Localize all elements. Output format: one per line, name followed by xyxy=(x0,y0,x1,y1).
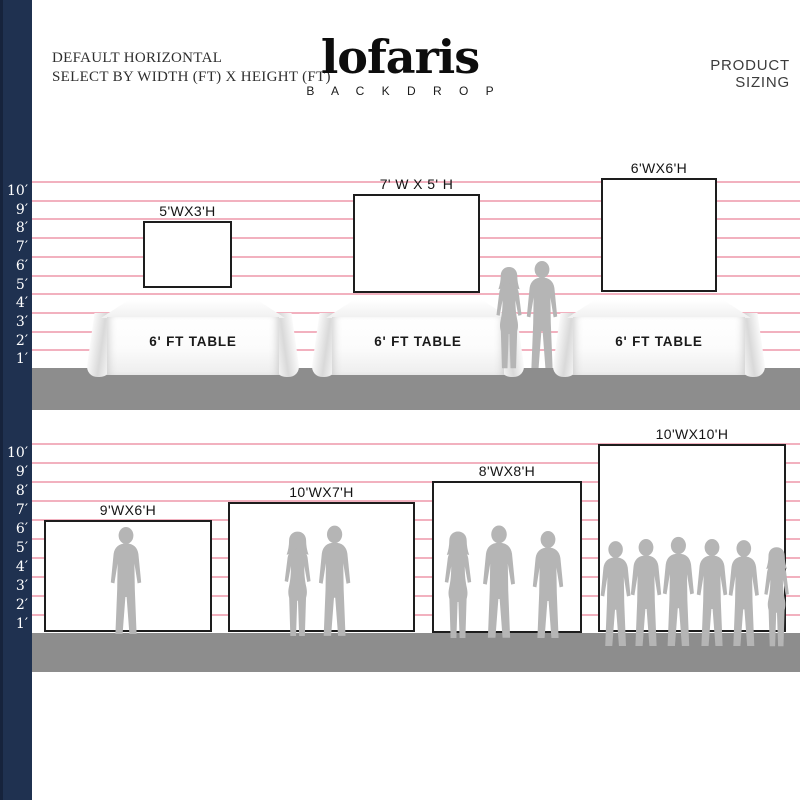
header-subtitle: DEFAULT HORIZONTAL SELECT BY WIDTH (FT) … xyxy=(52,49,331,87)
group-silhouette-10x10 xyxy=(596,532,796,650)
ruler-label-7ft-bottom: 7′ xyxy=(0,502,28,519)
ruler-label-7ft-top: 7′ xyxy=(0,239,28,256)
man-silhouette xyxy=(697,539,727,646)
table-2-label: 6' FT TABLE xyxy=(332,334,504,349)
ruler-label-10ft-top: 10′ xyxy=(0,183,28,200)
header-subtitle-line2: SELECT BY WIDTH (FT) X HEIGHT (FT) xyxy=(52,68,331,87)
single-man-silhouette xyxy=(106,524,146,638)
table-front: 6' FT TABLE xyxy=(573,317,745,375)
table-front: 6' FT TABLE xyxy=(107,317,279,375)
brand-logo-subtitle: B A C K D R O P xyxy=(300,84,500,98)
backdrop-10x7-label: 10'WX7'H xyxy=(200,484,443,500)
ruler-label-1ft-bottom: 1′ xyxy=(0,616,28,633)
ruler-label-4ft-top: 4′ xyxy=(0,295,28,312)
woman-silhouette xyxy=(445,532,471,639)
backdrop-10x10-label: 10'WX10'H xyxy=(570,426,800,442)
couple-silhouette-top xyxy=(490,254,570,372)
ruler-label-8ft-bottom: 8′ xyxy=(0,483,28,500)
ruler-label-6ft-top: 6′ xyxy=(0,258,28,275)
man-silhouette xyxy=(483,525,515,637)
couple-silhouette-10x7 xyxy=(276,522,361,640)
man-silhouette xyxy=(533,531,563,638)
ruler-label-8ft-top: 8′ xyxy=(0,220,28,237)
man-silhouette xyxy=(111,527,141,634)
man-silhouette xyxy=(663,537,694,646)
backdrop-5x3: 5'WX3'H xyxy=(143,221,232,288)
ruler-label-1ft-top: 1′ xyxy=(0,351,28,368)
product-sizing-chart: DEFAULT HORIZONTAL SELECT BY WIDTH (FT) … xyxy=(0,0,800,800)
trio-silhouette-8x8 xyxy=(438,520,573,642)
woman-silhouette xyxy=(285,532,311,636)
ruler-label-2ft-top: 2′ xyxy=(0,333,28,350)
ruler-label-4ft-bottom: 4′ xyxy=(0,559,28,576)
banquet-table-3: 6' FT TABLE xyxy=(573,300,745,376)
man-silhouette xyxy=(729,540,759,646)
woman-silhouette xyxy=(764,547,789,646)
table-3-label: 6' FT TABLE xyxy=(573,334,745,349)
table-top-surface xyxy=(567,300,751,318)
brand-logo: lofaris B A C K D R O P xyxy=(300,32,500,98)
backdrop-5x3-label: 5'WX3'H xyxy=(115,203,260,219)
backdrop-6x6: 6'WX6'H xyxy=(601,178,717,292)
logo-subtitle-text: B A C K D R O P xyxy=(299,84,500,98)
woman-silhouette xyxy=(496,267,521,368)
ruler-label-5ft-top: 5′ xyxy=(0,277,28,294)
ruler-label-3ft-top: 3′ xyxy=(0,314,28,331)
man-silhouette xyxy=(527,261,557,368)
backdrop-7x5-label: 7' W X 5' H xyxy=(325,176,508,192)
ruler-label-5ft-bottom: 5′ xyxy=(0,540,28,557)
gridline-4ft-top xyxy=(32,293,800,295)
man-silhouette xyxy=(631,539,661,646)
ruler-label-2ft-bottom: 2′ xyxy=(0,597,28,614)
backdrop-9x6-label: 9'WX6'H xyxy=(16,502,240,518)
banquet-table-1: 6' FT TABLE xyxy=(107,300,279,376)
table-1-label: 6' FT TABLE xyxy=(107,334,279,349)
table-front: 6' FT TABLE xyxy=(332,317,504,375)
table-top-surface xyxy=(101,300,285,318)
man-silhouette xyxy=(601,541,631,646)
page-title: PRODUCT SIZING xyxy=(664,57,790,91)
ruler-label-10ft-bottom: 10′ xyxy=(0,445,28,462)
ruler-label-9ft-top: 9′ xyxy=(0,202,28,219)
ruler-label-9ft-bottom: 9′ xyxy=(0,464,28,481)
banquet-table-2: 6' FT TABLE xyxy=(332,300,504,376)
table-top-surface xyxy=(326,300,510,318)
man-silhouette xyxy=(319,526,350,636)
backdrop-7x5: 7' W X 5' H xyxy=(353,194,480,293)
brand-logo-name: lofaris xyxy=(300,32,500,82)
ruler-label-6ft-bottom: 6′ xyxy=(0,521,28,538)
ruler-strip xyxy=(0,0,32,800)
header-subtitle-line1: DEFAULT HORIZONTAL xyxy=(52,49,331,68)
backdrop-8x8-label: 8'WX8'H xyxy=(404,463,610,479)
backdrop-6x6-label: 6'WX6'H xyxy=(573,160,745,176)
ruler-label-3ft-bottom: 3′ xyxy=(0,578,28,595)
